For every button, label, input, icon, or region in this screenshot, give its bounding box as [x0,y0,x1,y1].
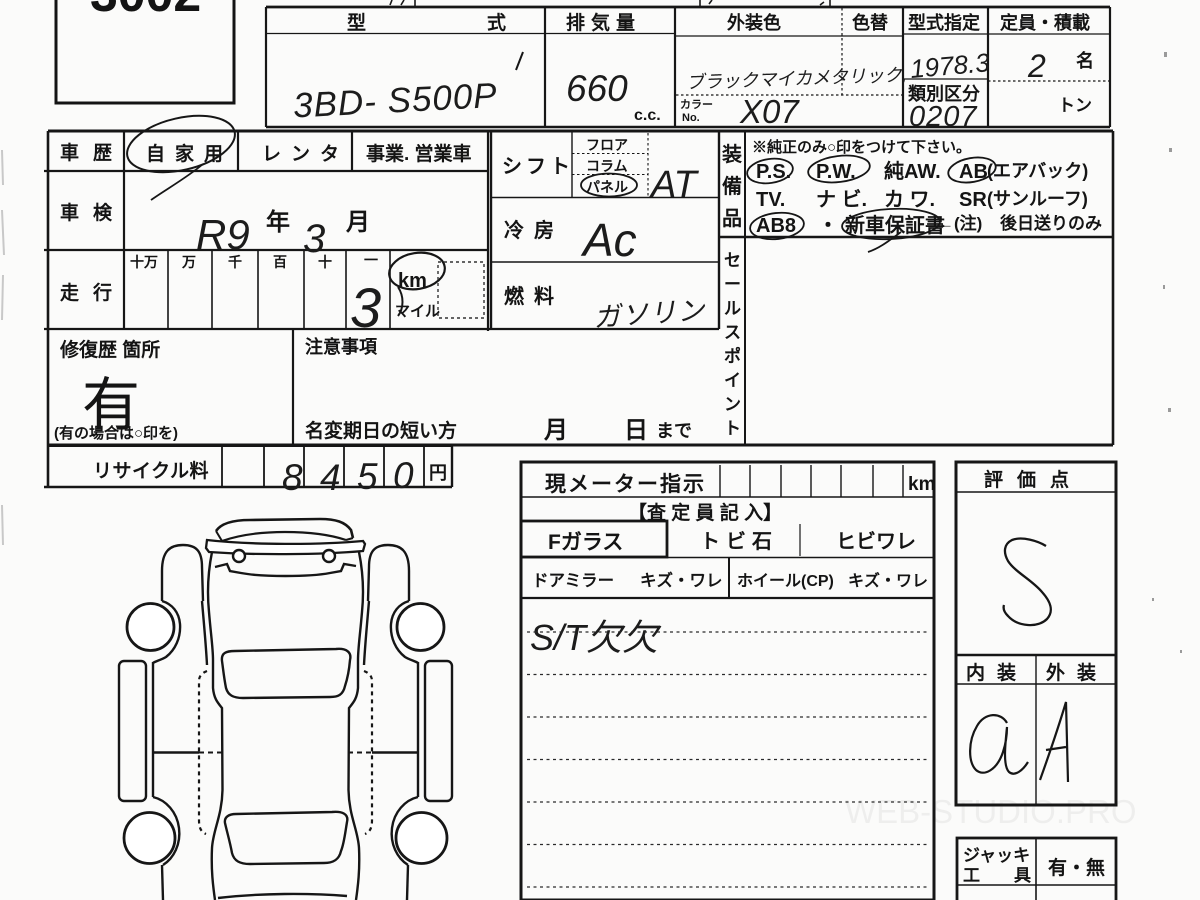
svg-text:カラー: カラー [680,98,713,111]
svg-text:キズ・ワレ: キズ・ワレ [640,570,723,590]
svg-text:ドアミラー: ドアミラー [532,572,614,590]
svg-text:ー: ー [724,275,741,294]
svg-text:事業. 営業車: 事業. 営業車 [366,142,472,165]
svg-text:Ac: Ac [580,214,637,266]
svg-text:シフト: シフト [502,156,574,178]
svg-text:(サンルーフ): (サンルーフ) [987,189,1088,209]
svg-text:年: 年 [266,208,290,236]
svg-text:Fガラス: Fガラス [548,531,623,554]
svg-text:X07: X07 [739,93,800,130]
svg-text:色替: 色替 [852,12,889,33]
svg-text:0: 0 [393,455,414,496]
svg-text:パネル: パネル [586,179,628,195]
svg-text:WEB-STUDIO.PRO: WEB-STUDIO.PRO [845,793,1137,830]
svg-text:外装: 外装 [1046,661,1108,684]
svg-text:車検: 車検 [60,201,126,224]
svg-text:車歴: 車歴 [60,141,126,164]
svg-text:十: 十 [318,254,332,270]
svg-text:名変期日の短い方: 名変期日の短い方 [305,419,457,442]
svg-text:ポ: ポ [724,346,741,366]
svg-text:カ ワ.: カ ワ. [884,189,935,211]
svg-text:まで: まで [656,421,692,441]
svg-text:型: 型 [347,11,366,34]
svg-text:自家用: 自家用 [146,142,233,165]
svg-text:千: 千 [228,254,242,270]
svg-text:ヒビワレ: ヒビワレ [836,530,916,553]
svg-text:ナ ビ.: ナ ビ. [816,188,867,211]
svg-text:AB8: AB8 [756,215,796,237]
svg-text:4: 4 [320,457,341,498]
svg-text:有・無: 有・無 [1048,856,1105,879]
svg-text:660: 660 [566,68,628,109]
svg-text:c.c.: c.c. [634,107,661,124]
svg-text:現メーター指示: 現メーター指示 [545,473,706,496]
svg-text:円: 円 [429,463,447,483]
svg-text:No.: No. [682,112,700,124]
svg-text:有: 有 [82,373,140,438]
svg-text:外装色: 外装色 [727,12,781,33]
svg-text:ル: ル [724,299,741,318]
svg-text:純AW.: 純AW. [884,159,941,183]
svg-text:名: 名 [1076,50,1094,71]
svg-text:←(注): ←(注) [937,213,982,233]
svg-text:コラム: コラム [586,158,628,174]
svg-text:日: 日 [624,417,648,444]
svg-text:排気量: 排気量 [566,11,641,34]
svg-text:新車保証書: 新車保証書 [845,213,945,237]
svg-text:注意事項: 注意事項 [305,336,378,357]
svg-text:修復歴 箇所: 修復歴 箇所 [59,338,160,361]
svg-text:式: 式 [487,11,506,34]
svg-text:5: 5 [357,456,378,497]
svg-text:キズ・ワレ: キズ・ワレ [848,571,928,590]
svg-text:セ: セ [724,251,741,270]
svg-text:型式指定: 型式指定 [908,12,980,33]
svg-text:冷房: 冷房 [504,218,564,242]
svg-text:TV.: TV. [756,189,785,211]
svg-text:R9: R9 [196,211,250,258]
svg-text:2: 2 [1027,48,1046,84]
svg-text:ホイール(CP): ホイール(CP) [737,572,834,590]
svg-text:走行: 走行 [60,281,126,304]
svg-text:工 具: 工 具 [963,866,1031,885]
svg-text:AT: AT [649,164,700,206]
svg-text:備: 備 [722,174,742,198]
svg-text:万: 万 [181,254,196,270]
svg-text:百: 百 [273,254,287,270]
svg-text:ト: ト [724,419,741,438]
svg-text:トン: トン [1058,96,1092,115]
svg-text:定員・積載: 定員・積載 [1000,12,1090,33]
svg-text:(エアバック): (エアバック) [987,161,1088,181]
svg-text:【査 定 員 記 入】: 【査 定 員 記 入】 [628,501,782,524]
svg-text:十万: 十万 [130,254,158,270]
svg-text:燃料: 燃料 [504,284,564,308]
svg-text:一: 一 [364,252,378,268]
svg-text:・: ・ [818,215,838,237]
svg-text:装: 装 [721,142,742,166]
svg-text:トビ石: トビ石 [700,530,778,553]
svg-text:イ: イ [724,371,741,390]
svg-text:ス: ス [724,323,741,342]
svg-text:km: km [908,474,935,495]
svg-text:月: 月 [345,209,370,236]
svg-text:レンタ: レンタ [262,143,349,165]
svg-text:評価点: 評価点 [984,468,1083,491]
svg-text:S/T欠欠: S/T欠欠 [530,617,662,658]
svg-text:3002: 3002 [90,0,201,22]
svg-text:フロア: フロア [586,137,628,153]
svg-text:品: 品 [722,207,742,230]
svg-text:後日送りのみ: 後日送りのみ [1000,213,1102,233]
svg-text:ジャッキ: ジャッキ [963,846,1030,865]
svg-text:8: 8 [282,457,303,498]
svg-text:SR: SR [959,189,987,211]
svg-text:3: 3 [350,276,381,339]
svg-text:内装: 内装 [966,661,1028,684]
svg-text:月: 月 [543,417,568,444]
svg-text:P.S.: P.S. [756,161,791,183]
svg-text:リサイクル料: リサイクル料 [93,459,209,482]
svg-text:ン: ン [724,395,741,414]
svg-text:0207: 0207 [909,101,978,133]
svg-text:※純正のみ○印をつけて下さい。: ※純正のみ○印をつけて下さい。 [752,138,971,156]
